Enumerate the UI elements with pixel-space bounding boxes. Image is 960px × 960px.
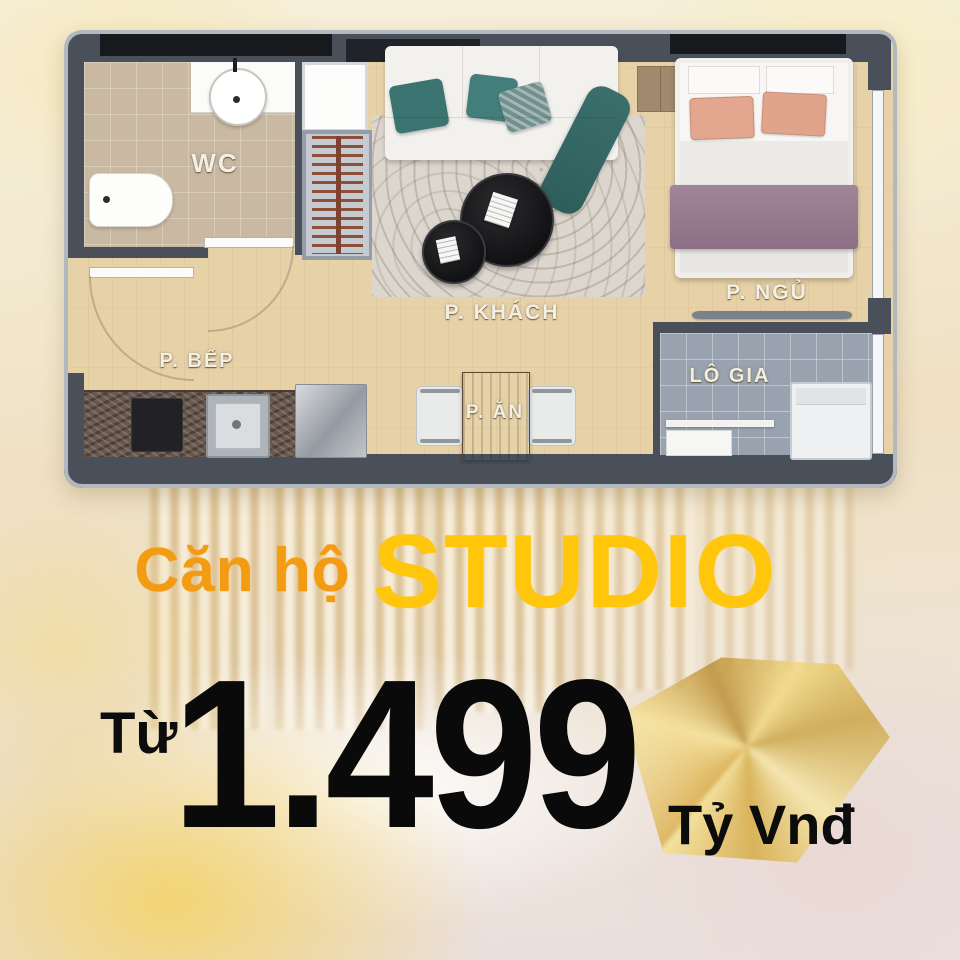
room-label-bedroom: P. NGỦ — [677, 281, 857, 305]
kitchen-faucet — [232, 420, 241, 429]
room-label-living: P. KHÁCH — [412, 301, 592, 325]
loggia-ledge — [666, 420, 774, 427]
toilet-flush-button — [103, 196, 110, 203]
wall-top-window-left — [100, 33, 332, 56]
headline-prefix: Căn hộ — [134, 535, 350, 606]
room-label-kitchen: P. BẾP — [117, 350, 277, 373]
bed-pillow — [689, 96, 754, 140]
cooktop — [131, 398, 183, 452]
wall-right-corner-mid — [868, 298, 891, 334]
wall-top-window-right — [670, 33, 846, 54]
toilet — [89, 173, 173, 227]
wc-sink-tap — [233, 58, 237, 72]
room-label-dining: P. ĂN — [445, 402, 545, 424]
window-bedroom — [872, 90, 884, 300]
sofa-pillow — [388, 78, 450, 135]
bed — [675, 58, 853, 278]
price-amount: 1.499 — [172, 648, 637, 860]
loggia-cabinet — [666, 430, 732, 456]
bed-duvet-fold — [688, 66, 760, 94]
price-unit: Tỷ Vnđ — [668, 792, 855, 857]
wall-right-corner-top — [868, 62, 891, 90]
wc-sink-drain — [233, 96, 240, 103]
price-from-label: Từ — [100, 700, 177, 767]
bed-blanket — [670, 185, 858, 249]
poster-stage: WC P. KHÁCH P. NGỦ P. BẾP — [0, 0, 960, 960]
fridge — [295, 384, 367, 458]
shower-tray — [302, 62, 368, 132]
bed-pillow — [761, 91, 827, 136]
sofa-seat-line — [385, 117, 618, 118]
headline-highlight: STUDIO — [373, 520, 778, 624]
washing-machine — [790, 382, 872, 460]
room-label-loggia: LÔ GIA — [660, 365, 800, 388]
headline: Căn hộ STUDIO — [0, 520, 912, 624]
window-loggia — [872, 334, 884, 454]
washing-machine-panel — [796, 388, 866, 405]
shower-mat — [302, 130, 373, 260]
bed-duvet-fold — [766, 66, 834, 94]
bed-sheet — [680, 248, 848, 273]
wall-left-lower — [67, 373, 84, 458]
wall-wc-bottom — [67, 247, 208, 258]
wall-left-upper — [67, 62, 84, 252]
bed-sheet — [680, 141, 848, 189]
room-label-wc: WC — [170, 148, 260, 179]
sliding-door — [692, 311, 852, 319]
floor-plan: WC P. KHÁCH P. NGỦ P. BẾP — [64, 30, 897, 488]
